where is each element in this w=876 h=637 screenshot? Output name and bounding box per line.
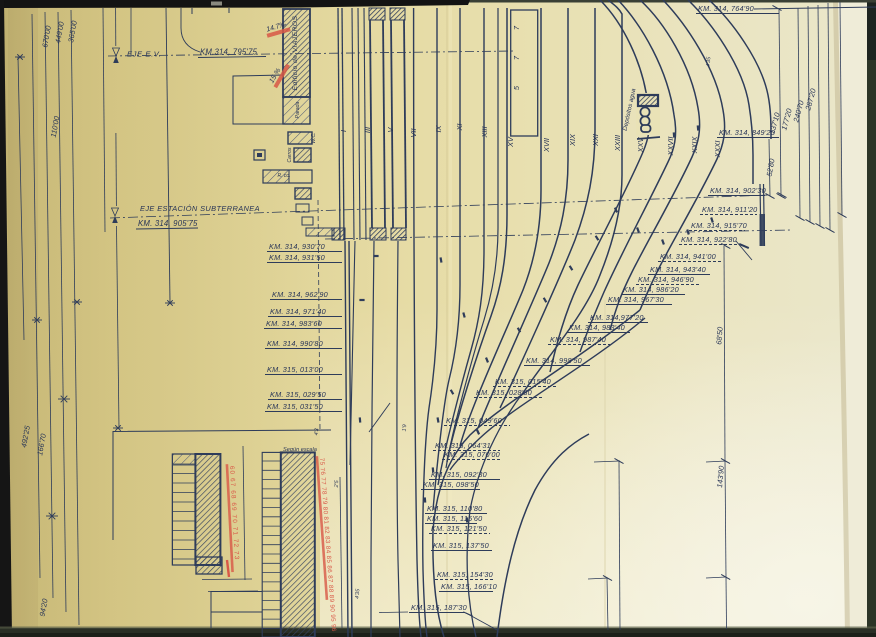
svg-text:KM. 315, 110'80: KM. 315, 110'80 bbox=[427, 504, 482, 513]
svg-text:KM. 314, 902'30: KM. 314, 902'30 bbox=[710, 186, 766, 195]
svg-text:W.C.: W.C. bbox=[311, 132, 317, 143]
svg-text:KM. 314, 941'00: KM. 314, 941'00 bbox=[660, 252, 716, 261]
svg-text:KM. 314, 986'20: KM. 314, 986'20 bbox=[623, 285, 679, 294]
svg-text:4'3: 4'3 bbox=[314, 428, 321, 436]
svg-text:4'35: 4'35 bbox=[706, 56, 713, 68]
svg-text:KM. 314, 764'90: KM. 314, 764'90 bbox=[698, 4, 754, 13]
svg-text:XIII: XIII bbox=[480, 126, 489, 138]
svg-text:KM. 315, 092'30: KM. 315, 092'30 bbox=[431, 470, 487, 479]
svg-text:KM. 315, 029'50: KM. 315, 029'50 bbox=[270, 390, 326, 399]
svg-text:KM. 315, 031'50: KM. 315, 031'50 bbox=[267, 402, 323, 411]
svg-text:KM. 315, 137'50: KM. 315, 137'50 bbox=[433, 541, 489, 550]
svg-text:VII: VII bbox=[409, 128, 418, 137]
svg-text:KM. 314, 905'75: KM. 314, 905'75 bbox=[138, 219, 198, 228]
svg-text:KM. 315, 154'30: KM. 315, 154'30 bbox=[437, 570, 493, 579]
svg-text:1'9: 1'9 bbox=[402, 424, 409, 432]
svg-text:XVII: XVII bbox=[542, 138, 551, 153]
svg-text:KM. 315, 013'00: KM. 315, 013'00 bbox=[267, 365, 323, 374]
svg-text:4'35: 4'35 bbox=[355, 588, 362, 600]
svg-text:KM. 314, 990'80: KM. 314, 990'80 bbox=[267, 339, 323, 348]
svg-text:XIX: XIX bbox=[568, 133, 577, 147]
svg-text:KM. 314, 983'60: KM. 314, 983'60 bbox=[266, 319, 322, 328]
svg-text:KM. 314, 931'50: KM. 314, 931'50 bbox=[269, 253, 325, 262]
svg-text:KM. 315, 015'40: KM. 315, 015'40 bbox=[495, 377, 551, 386]
svg-text:XXVII: XXVII bbox=[666, 137, 675, 157]
svg-text:KM. 314, 930'70: KM. 314, 930'70 bbox=[269, 242, 325, 251]
svg-text:I: I bbox=[339, 130, 348, 132]
svg-text:EJE ESTACIÓN SUBTERRANEA: EJE ESTACIÓN SUBTERRANEA bbox=[140, 204, 260, 213]
svg-text:68'50: 68'50 bbox=[714, 326, 725, 345]
svg-text:KM. 315, 187'30: KM. 315, 187'30 bbox=[411, 603, 467, 612]
svg-text:XXXI: XXXI bbox=[713, 141, 722, 159]
svg-text:XXIX: XXIX bbox=[690, 136, 699, 155]
svg-text:XXI: XXI bbox=[591, 134, 600, 147]
svg-text:KM. 315, 121'50: KM. 315, 121'50 bbox=[431, 524, 487, 533]
svg-text:KM. 314, 987'40: KM. 314, 987'40 bbox=[550, 335, 606, 344]
svg-text:KM. 315, 115'60: KM. 315, 115'60 bbox=[427, 514, 482, 523]
svg-text:KM. 314, 943'40: KM. 314, 943'40 bbox=[650, 265, 706, 274]
svg-text:Edificio de VIAJEROS: Edificio de VIAJEROS bbox=[292, 16, 299, 91]
svg-text:XI: XI bbox=[455, 124, 464, 132]
svg-text:KM. 314, 915'70: KM. 314, 915'70 bbox=[691, 221, 747, 230]
svg-text:KM. 314, 971'40: KM. 314, 971'40 bbox=[270, 307, 326, 316]
svg-text:KM. 315, 070'00: KM. 315, 070'00 bbox=[444, 450, 500, 459]
svg-text:KM. 314,977'20: KM. 314,977'20 bbox=[590, 313, 644, 322]
svg-text:KM. 314, 922'80: KM. 314, 922'80 bbox=[681, 235, 737, 244]
svg-text:KM. 315, 028'80: KM. 315, 028'80 bbox=[476, 388, 532, 397]
svg-text:XXIII: XXIII bbox=[613, 135, 622, 152]
svg-text:Parada: Parada bbox=[295, 102, 301, 119]
svg-text:KM.314, 795'75: KM.314, 795'75 bbox=[200, 48, 258, 57]
svg-text:KM. 314, 983'40: KM. 314, 983'40 bbox=[569, 323, 625, 332]
svg-text:XV: XV bbox=[506, 136, 515, 148]
svg-text:R. co.: R. co. bbox=[277, 173, 290, 179]
svg-text:KM. 314, 962'90: KM. 314, 962'90 bbox=[272, 290, 328, 299]
svg-text:KM. 314, 946'90: KM. 314, 946'90 bbox=[638, 275, 694, 284]
svg-text:EJE E.V.: EJE E.V. bbox=[127, 50, 162, 59]
svg-text:III: III bbox=[363, 127, 372, 133]
svg-text:KM. 315, 098'50: KM. 315, 098'50 bbox=[423, 480, 479, 489]
svg-text:KM. 315, 064'31: KM. 315, 064'31 bbox=[435, 441, 491, 450]
svg-text:KM. 314, 911'20: KM. 314, 911'20 bbox=[702, 205, 757, 214]
svg-text:Carros: Carros bbox=[287, 147, 293, 163]
svg-text:KM. 314, 998'50: KM. 314, 998'50 bbox=[526, 356, 582, 365]
svg-text:IX: IX bbox=[434, 124, 443, 132]
svg-text:KM. 314, 967'30: KM. 314, 967'30 bbox=[608, 295, 664, 304]
svg-text:KM. 315, 049'60: KM. 315, 049'60 bbox=[446, 416, 502, 425]
svg-text:KM. 315, 166'10: KM. 315, 166'10 bbox=[441, 582, 497, 591]
